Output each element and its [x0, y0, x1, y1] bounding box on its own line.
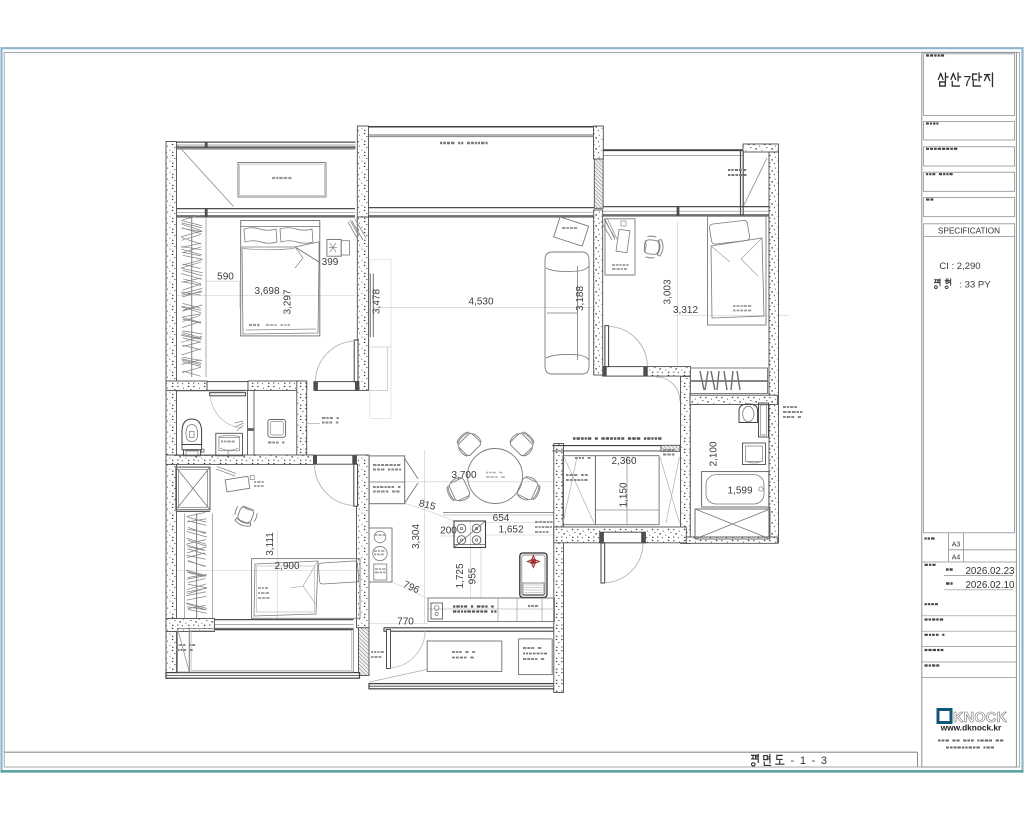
- svg-text:3,188: 3,188: [575, 286, 586, 311]
- svg-text:3,700: 3,700: [451, 470, 476, 481]
- svg-text:654: 654: [493, 513, 510, 524]
- svg-text:3,111: 3,111: [265, 532, 276, 556]
- svg-text:770: 770: [397, 617, 414, 628]
- svg-text:- 1 - 3: - 1 - 3: [791, 755, 829, 767]
- svg-text:200: 200: [440, 526, 457, 537]
- svg-text:3,312: 3,312: [673, 305, 698, 316]
- svg-text:: 33 PY: : 33 PY: [959, 279, 991, 290]
- svg-text:A3: A3: [952, 542, 961, 549]
- svg-text:2,900: 2,900: [274, 561, 299, 572]
- svg-text:2,100: 2,100: [709, 441, 720, 466]
- svg-text:3,304: 3,304: [411, 524, 422, 549]
- svg-text:1,652: 1,652: [498, 525, 523, 536]
- svg-text:2026.02.10: 2026.02.10: [965, 580, 1015, 591]
- svg-text:3,003: 3,003: [663, 279, 674, 304]
- svg-text:4,530: 4,530: [468, 297, 493, 308]
- svg-text:590: 590: [217, 272, 234, 283]
- svg-text:1,599: 1,599: [727, 486, 752, 497]
- svg-text:3,698: 3,698: [254, 286, 279, 297]
- svg-text:www.dknock.kr: www.dknock.kr: [940, 723, 1002, 733]
- svg-text:7: 7: [963, 74, 971, 90]
- svg-text:1,150: 1,150: [619, 482, 630, 507]
- svg-text:399: 399: [322, 257, 339, 268]
- svg-text:3,478: 3,478: [372, 289, 383, 314]
- svg-text:3,297: 3,297: [283, 289, 294, 314]
- svg-text:SPECIFICATION: SPECIFICATION: [938, 227, 1000, 236]
- svg-text:1,725: 1,725: [455, 563, 466, 588]
- svg-text:CI : 2,290: CI : 2,290: [939, 261, 980, 272]
- svg-text:955: 955: [468, 567, 479, 584]
- svg-text:A4: A4: [952, 555, 961, 562]
- svg-text:2,360: 2,360: [611, 456, 636, 467]
